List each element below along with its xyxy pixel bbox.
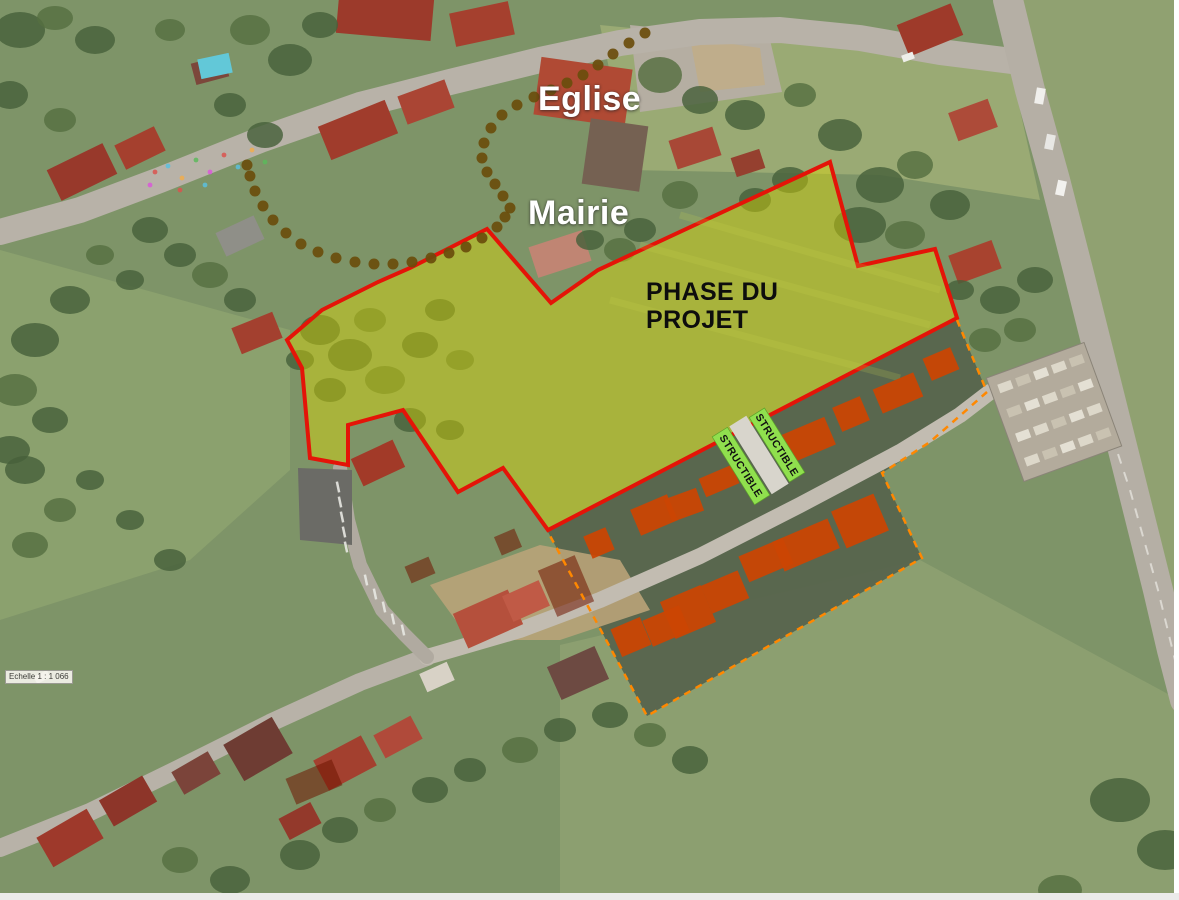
aerial-map: STRUCTIBLESTRUCTIBLE Eglise Mairie PHASE… [0,0,1179,900]
eglise-label: Eglise [538,80,641,119]
project-phase-line2: PROJET [646,306,778,334]
mairie-label: Mairie [528,194,629,233]
project-phase-line1: PHASE DU [646,278,778,306]
scale-label: Echelle 1 : 1 066 [5,670,73,684]
project-phase-label: PHASE DU PROJET [646,278,778,335]
map-canvas: STRUCTIBLESTRUCTIBLE [0,0,1179,900]
